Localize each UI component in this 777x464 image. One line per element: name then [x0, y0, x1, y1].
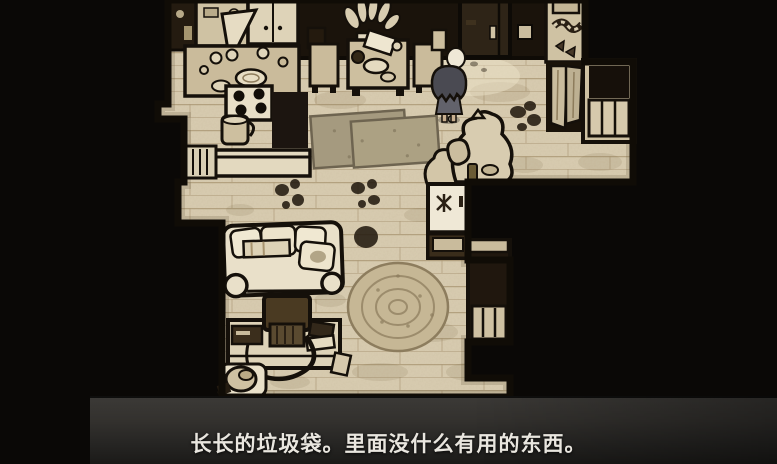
fridge-handle [459, 196, 463, 207]
window-radiator [583, 60, 635, 142]
hanging-coats [546, 62, 586, 132]
apartment-map [0, 0, 777, 464]
kettle[interactable] [222, 116, 254, 144]
side-cabinet[interactable] [468, 240, 510, 342]
radiator [186, 146, 216, 178]
kitchen [170, 0, 310, 178]
round-rug [348, 263, 448, 351]
dining-table[interactable] [348, 30, 408, 96]
vcr[interactable] [232, 326, 262, 344]
character-hair [432, 66, 466, 101]
sofa[interactable] [223, 222, 343, 297]
counter-corner [272, 92, 308, 148]
kitchen-niche [170, 0, 196, 50]
floor-mat [310, 108, 439, 171]
refrigerator[interactable] [428, 184, 468, 258]
game-viewport[interactable]: 长长的垃圾袋。里面没什么有用的东西。 [0, 0, 777, 464]
entry-door[interactable] [460, 0, 510, 57]
subtitle-text: 长长的垃圾袋。里面没什么有用的东西。 [0, 428, 777, 458]
wall-picture [518, 25, 532, 39]
bottle [468, 164, 477, 181]
papers [331, 353, 351, 376]
tv[interactable] [264, 296, 310, 346]
storage-shelf[interactable] [546, 0, 586, 62]
